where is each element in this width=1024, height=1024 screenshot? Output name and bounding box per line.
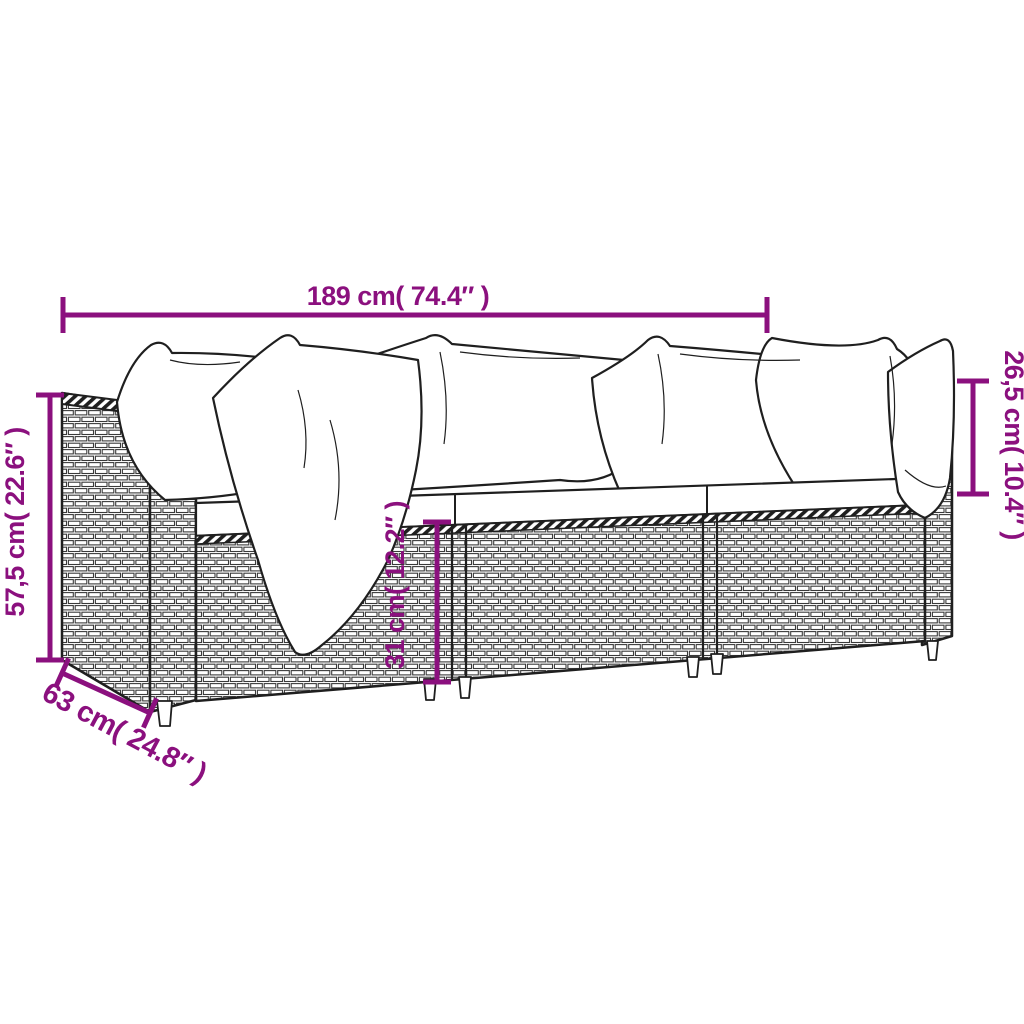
dimension-backrest-height: 26,5 cm( 10.4″ ) bbox=[957, 350, 1024, 540]
dimension-seat-height-label: 31 cm( 12.2″ ) bbox=[380, 501, 410, 669]
dimension-backrest-height-line bbox=[957, 381, 989, 494]
pillow-right-draped bbox=[888, 339, 954, 518]
leg bbox=[687, 657, 699, 677]
dimension-diagram-svg: 189 cm( 74.4″ ) 57,5 cm( 22.6″ ) 26,5 cm… bbox=[0, 0, 1024, 1024]
dimension-height: 57,5 cm( 22.6″ ) bbox=[0, 395, 64, 660]
dimension-backrest-height-label: 26,5 cm( 10.4″ ) bbox=[999, 350, 1024, 540]
leg bbox=[927, 641, 938, 660]
product-dimension-image: 189 cm( 74.4″ ) 57,5 cm( 22.6″ ) 26,5 cm… bbox=[0, 0, 1024, 1024]
leg bbox=[459, 677, 471, 698]
dimension-width: 189 cm( 74.4″ ) bbox=[63, 281, 767, 333]
dimension-height-line bbox=[36, 395, 64, 660]
sofa-illustration bbox=[62, 335, 954, 726]
dimension-height-label: 57,5 cm( 22.6″ ) bbox=[0, 427, 30, 617]
leg bbox=[157, 701, 172, 726]
dimension-width-label: 189 cm( 74.4″ ) bbox=[307, 281, 490, 311]
leg bbox=[711, 654, 723, 674]
